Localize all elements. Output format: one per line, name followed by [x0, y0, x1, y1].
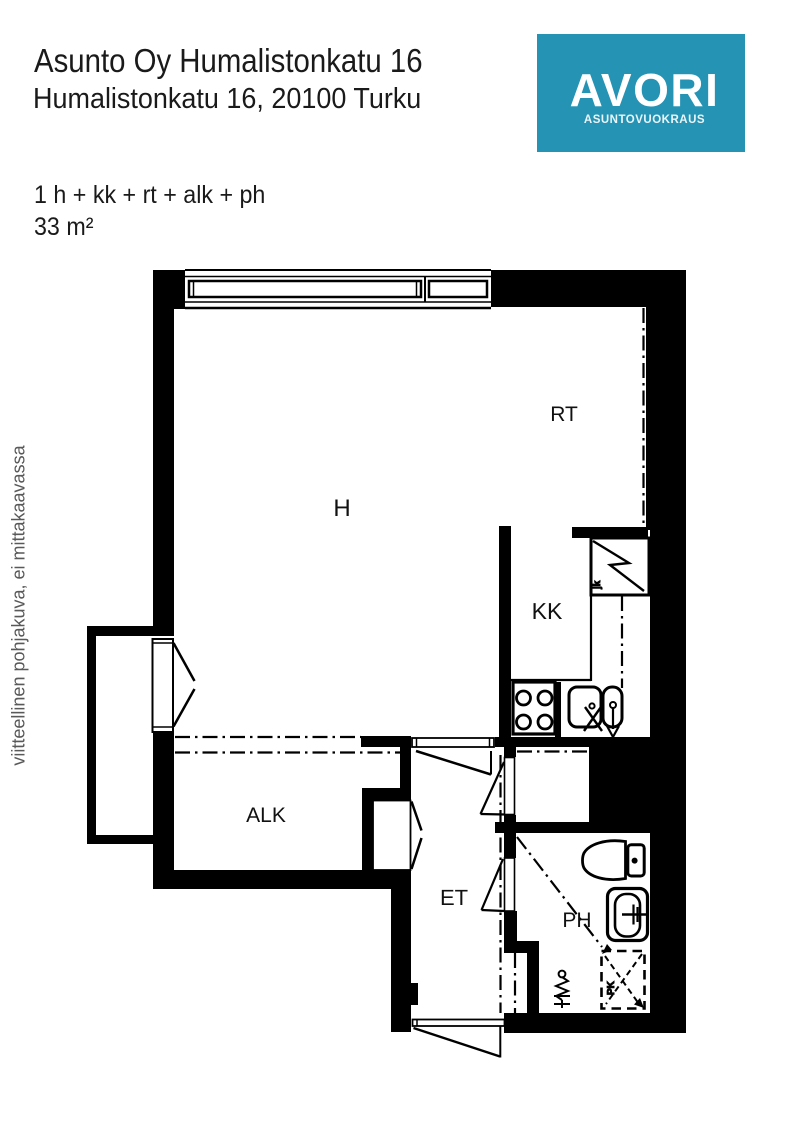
svg-text:PH: PH — [562, 909, 591, 932]
svg-text:KK: KK — [532, 598, 563, 624]
svg-text:ALK: ALK — [246, 804, 286, 827]
svg-text:H: H — [333, 495, 350, 522]
svg-text:PK: PK — [606, 980, 617, 995]
svg-text:RT: RT — [550, 403, 578, 426]
svg-text:ET: ET — [440, 885, 468, 910]
svg-text:jk: jk — [592, 580, 603, 590]
